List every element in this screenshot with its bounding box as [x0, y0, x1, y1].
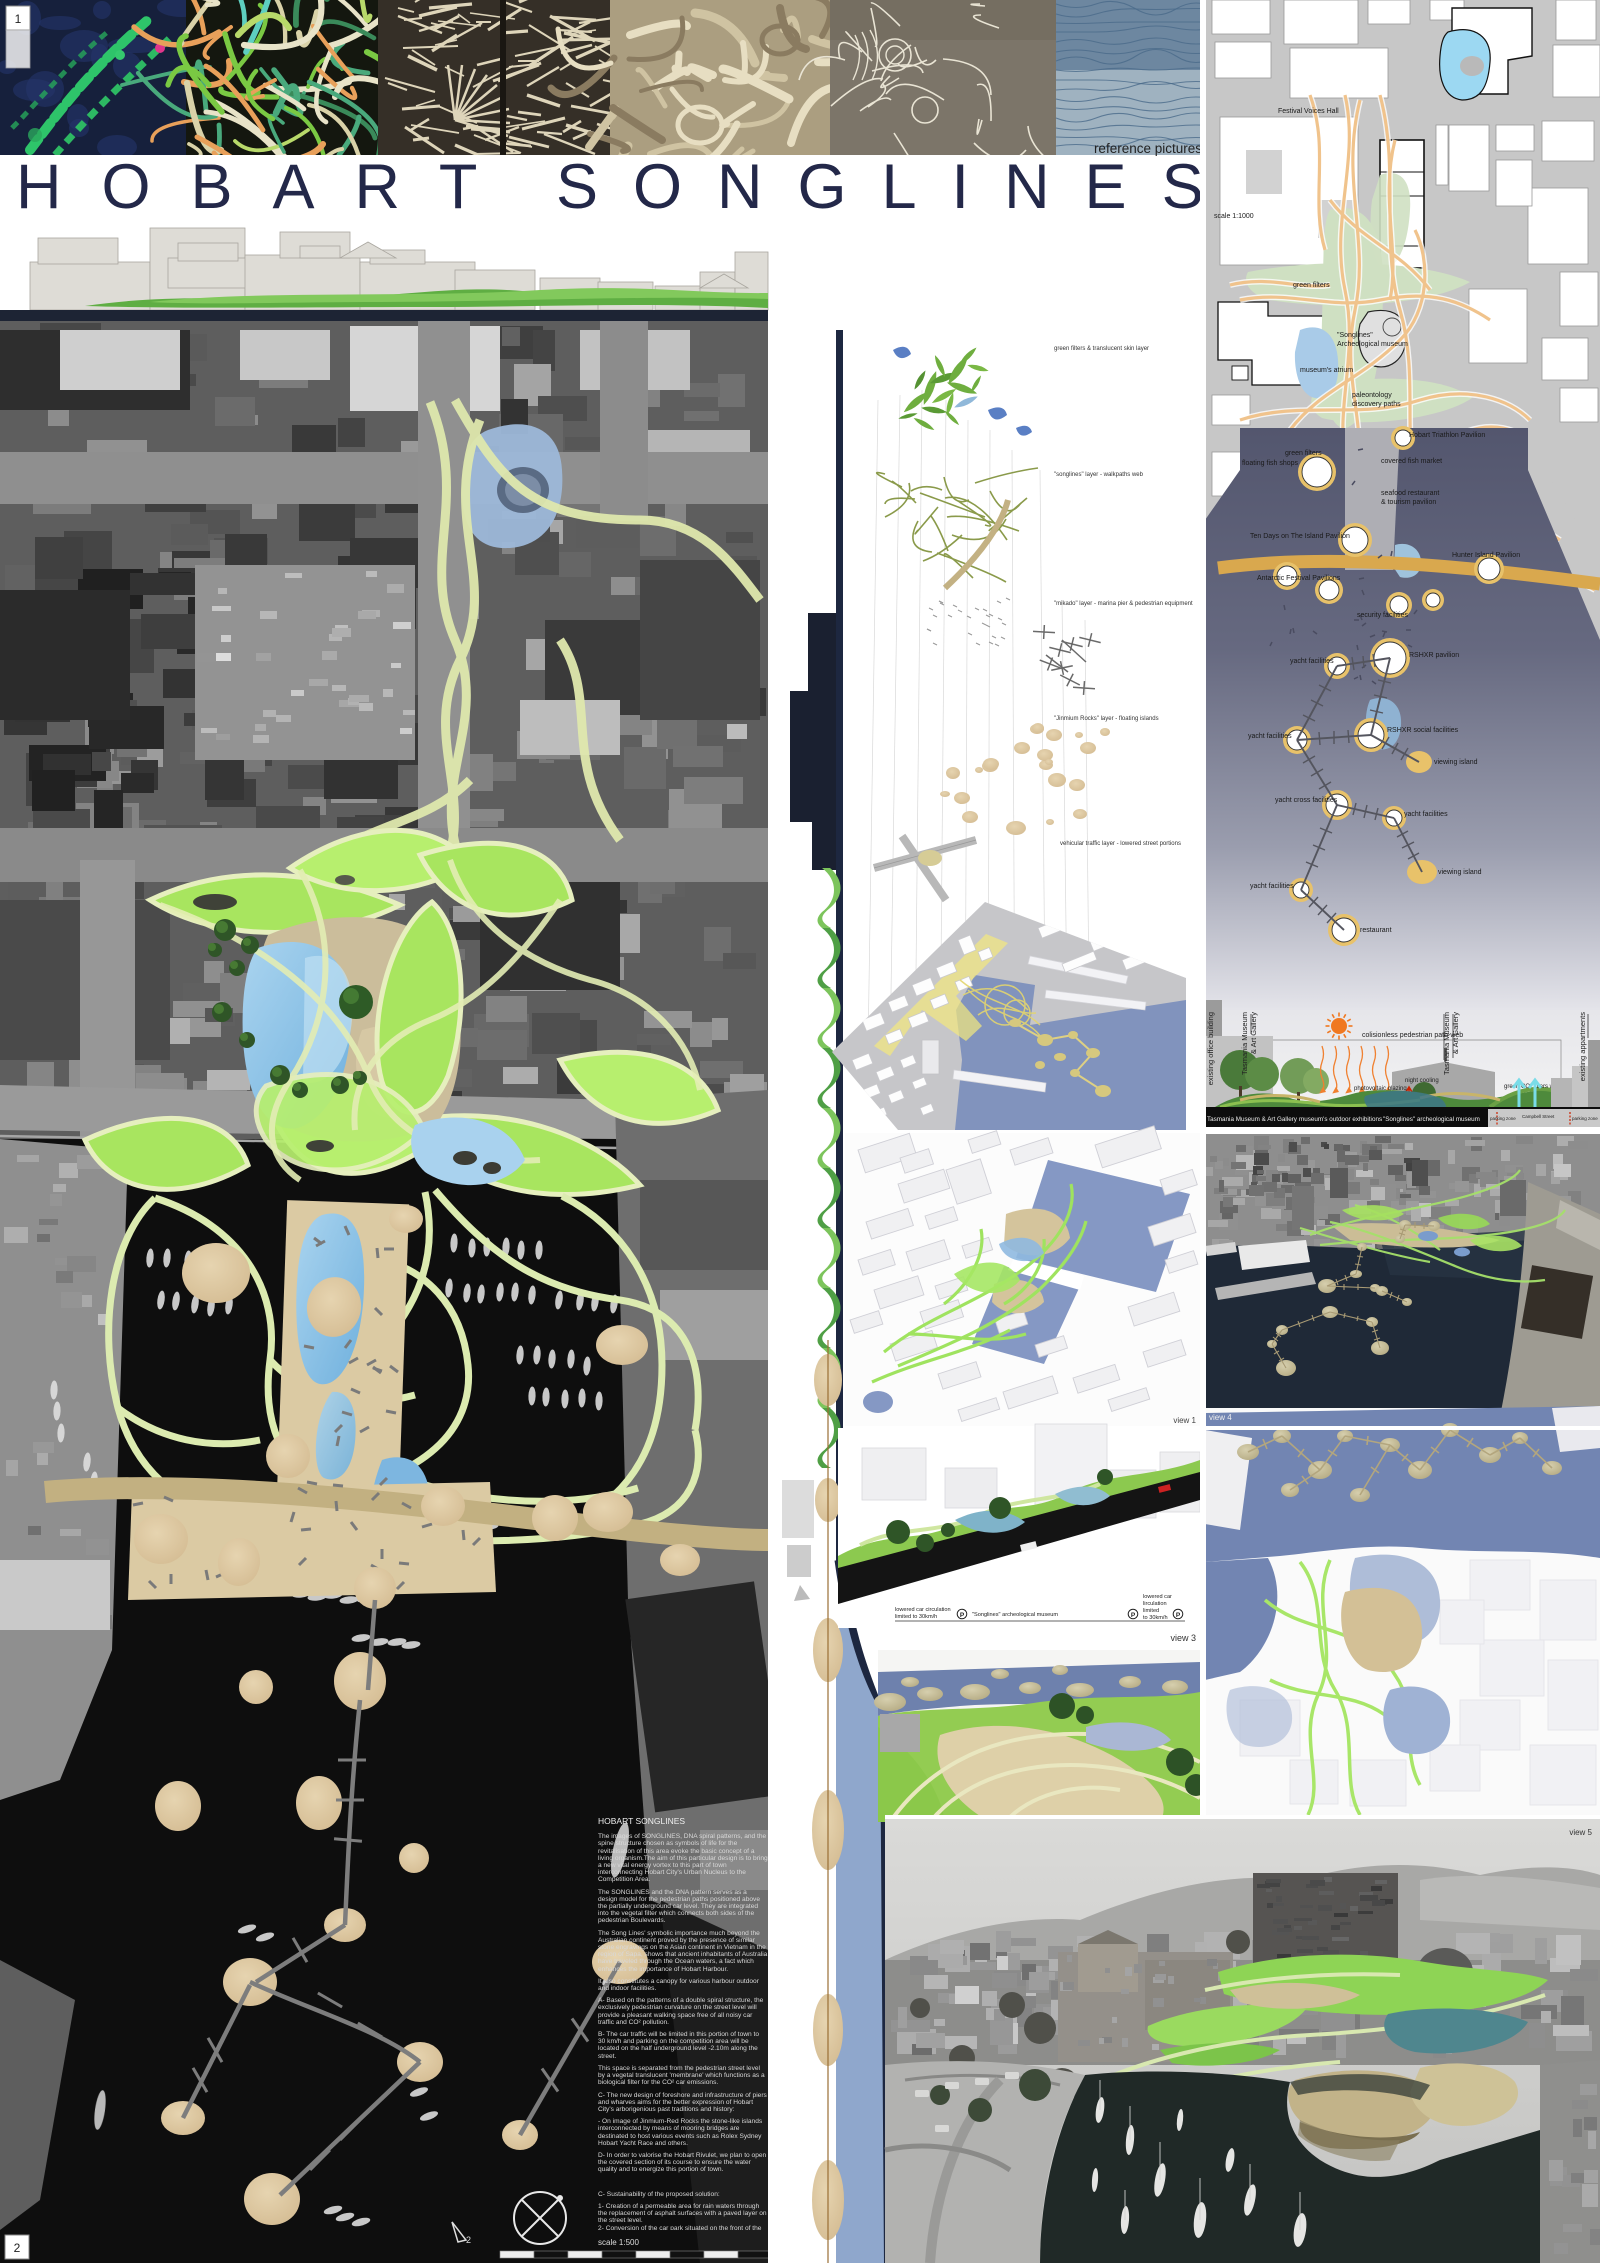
svg-text:HOBART: HOBART [16, 152, 517, 222]
svg-text:"Songlines" archeological muse: "Songlines" archeological museum [1383, 1116, 1480, 1123]
svg-text:security facilities: security facilities [1357, 612, 1408, 619]
svg-text:view 5: view 5 [1569, 1828, 1592, 1837]
svg-text:"Songlines": "Songlines" [1337, 332, 1373, 339]
svg-text:2: 2 [466, 2235, 471, 2245]
svg-text:view 1: view 1 [1173, 1416, 1196, 1425]
svg-text:museum's outdoor exhibitions: museum's outdoor exhibitions [1299, 1116, 1382, 1123]
svg-text:to 30km/h: to 30km/h [1143, 1615, 1168, 1621]
svg-text:2: 2 [14, 2241, 21, 2255]
svg-text:restaurant: restaurant [1360, 927, 1392, 934]
svg-text:Festival Voices Hall: Festival Voices Hall [1278, 108, 1339, 115]
svg-text:"songlines" layer - walkpaths: "songlines" layer - walkpaths web [1054, 472, 1144, 478]
svg-text:"Jinmium Rocks" layer - floati: "Jinmium Rocks" layer - floating islands [1054, 716, 1159, 722]
svg-text:Hunter Island Pavilion: Hunter Island Pavilion [1452, 552, 1520, 559]
svg-text:Tasmania Museum: Tasmania Museum [1442, 1012, 1451, 1075]
svg-text:parking zone: parking zone [1490, 1116, 1516, 1121]
svg-text:Ten Days on The Island Pavilio: Ten Days on The Island Pavilion [1250, 533, 1350, 540]
svg-text:limited to 30km/h: limited to 30km/h [895, 1614, 937, 1620]
svg-text:lirculation: lirculation [1143, 1601, 1167, 1607]
svg-text:green filters & translucent sk: green filters & translucent skin layer [1054, 346, 1149, 352]
svg-text:RSHXR pavilion: RSHXR pavilion [1409, 652, 1459, 659]
svg-text:parking zone: parking zone [1572, 1116, 1598, 1121]
svg-text:SONGLINES: SONGLINES [556, 152, 1239, 222]
svg-text:discovery paths: discovery paths [1352, 401, 1401, 408]
svg-text:yacht cross facilities: yacht cross facilities [1275, 797, 1338, 804]
svg-text:paleontology: paleontology [1352, 392, 1392, 399]
svg-text:Campbell Street: Campbell Street [1522, 1114, 1555, 1119]
svg-text:Archeological museum: Archeological museum [1337, 341, 1408, 348]
svg-text:view 3: view 3 [1170, 1633, 1196, 1643]
svg-text:viewing island: viewing island [1434, 759, 1478, 766]
svg-text:viewing island: viewing island [1438, 869, 1482, 876]
svg-text:scale 1:1000: scale 1:1000 [1214, 213, 1254, 220]
svg-text:yacht facilities: yacht facilities [1248, 733, 1292, 740]
svg-text:existing office building: existing office building [1206, 1012, 1215, 1085]
svg-text:seafood restaurant: seafood restaurant [1381, 490, 1439, 497]
svg-text:P: P [1131, 1612, 1136, 1619]
svg-text:Tasmania Museum: Tasmania Museum [1240, 1012, 1249, 1075]
svg-text:Hobart Triathlon Pavilion: Hobart Triathlon Pavilion [1409, 432, 1485, 439]
svg-text:& Art Gallery: & Art Gallery [1249, 1012, 1258, 1054]
svg-text:floating fish shops: floating fish shops [1242, 460, 1299, 467]
svg-text:green filters: green filters [1293, 282, 1330, 289]
svg-text:lowered car: lowered car [1143, 1594, 1172, 1600]
svg-text:view 4: view 4 [1209, 1413, 1232, 1422]
svg-text:P: P [1176, 1612, 1181, 1619]
svg-text:"mikado" layer - marina pier &: "mikado" layer - marina pier & pedestria… [1054, 601, 1193, 607]
svg-text:yacht facilities: yacht facilities [1250, 883, 1294, 890]
svg-text:vehicular traffic layer - lowe: vehicular traffic layer - lowered street… [1060, 841, 1181, 847]
svg-text:P: P [960, 1612, 965, 1619]
svg-text:Tasmania Museum & Art Gallery: Tasmania Museum & Art Gallery [1207, 1116, 1298, 1123]
svg-text:museum's atrium: museum's atrium [1300, 367, 1353, 374]
svg-text:existing appartments: existing appartments [1578, 1012, 1587, 1081]
svg-text:RSHXR social facilities: RSHXR social facilities [1387, 727, 1459, 734]
svg-text:yacht facilities: yacht facilities [1404, 811, 1448, 818]
svg-text:lowered car circulation: lowered car circulation [895, 1607, 951, 1613]
svg-text:limited: limited [1143, 1608, 1159, 1614]
svg-text:& Art Gallery: & Art Gallery [1451, 1012, 1460, 1054]
svg-text:yacht facilities: yacht facilities [1290, 658, 1334, 665]
svg-text:& tourism pavilion: & tourism pavilion [1381, 499, 1436, 506]
svg-text:"Songlines" archeological muse: "Songlines" archeological museum [972, 1612, 1058, 1618]
svg-text:scale 1:500: scale 1:500 [598, 2238, 639, 2247]
svg-text:green filters: green filters [1285, 450, 1322, 457]
svg-text:Antarctic Festival Pavilions: Antarctic Festival Pavilions [1257, 575, 1341, 582]
svg-text:covered fish market: covered fish market [1381, 458, 1442, 465]
svg-text:1: 1 [15, 12, 22, 26]
